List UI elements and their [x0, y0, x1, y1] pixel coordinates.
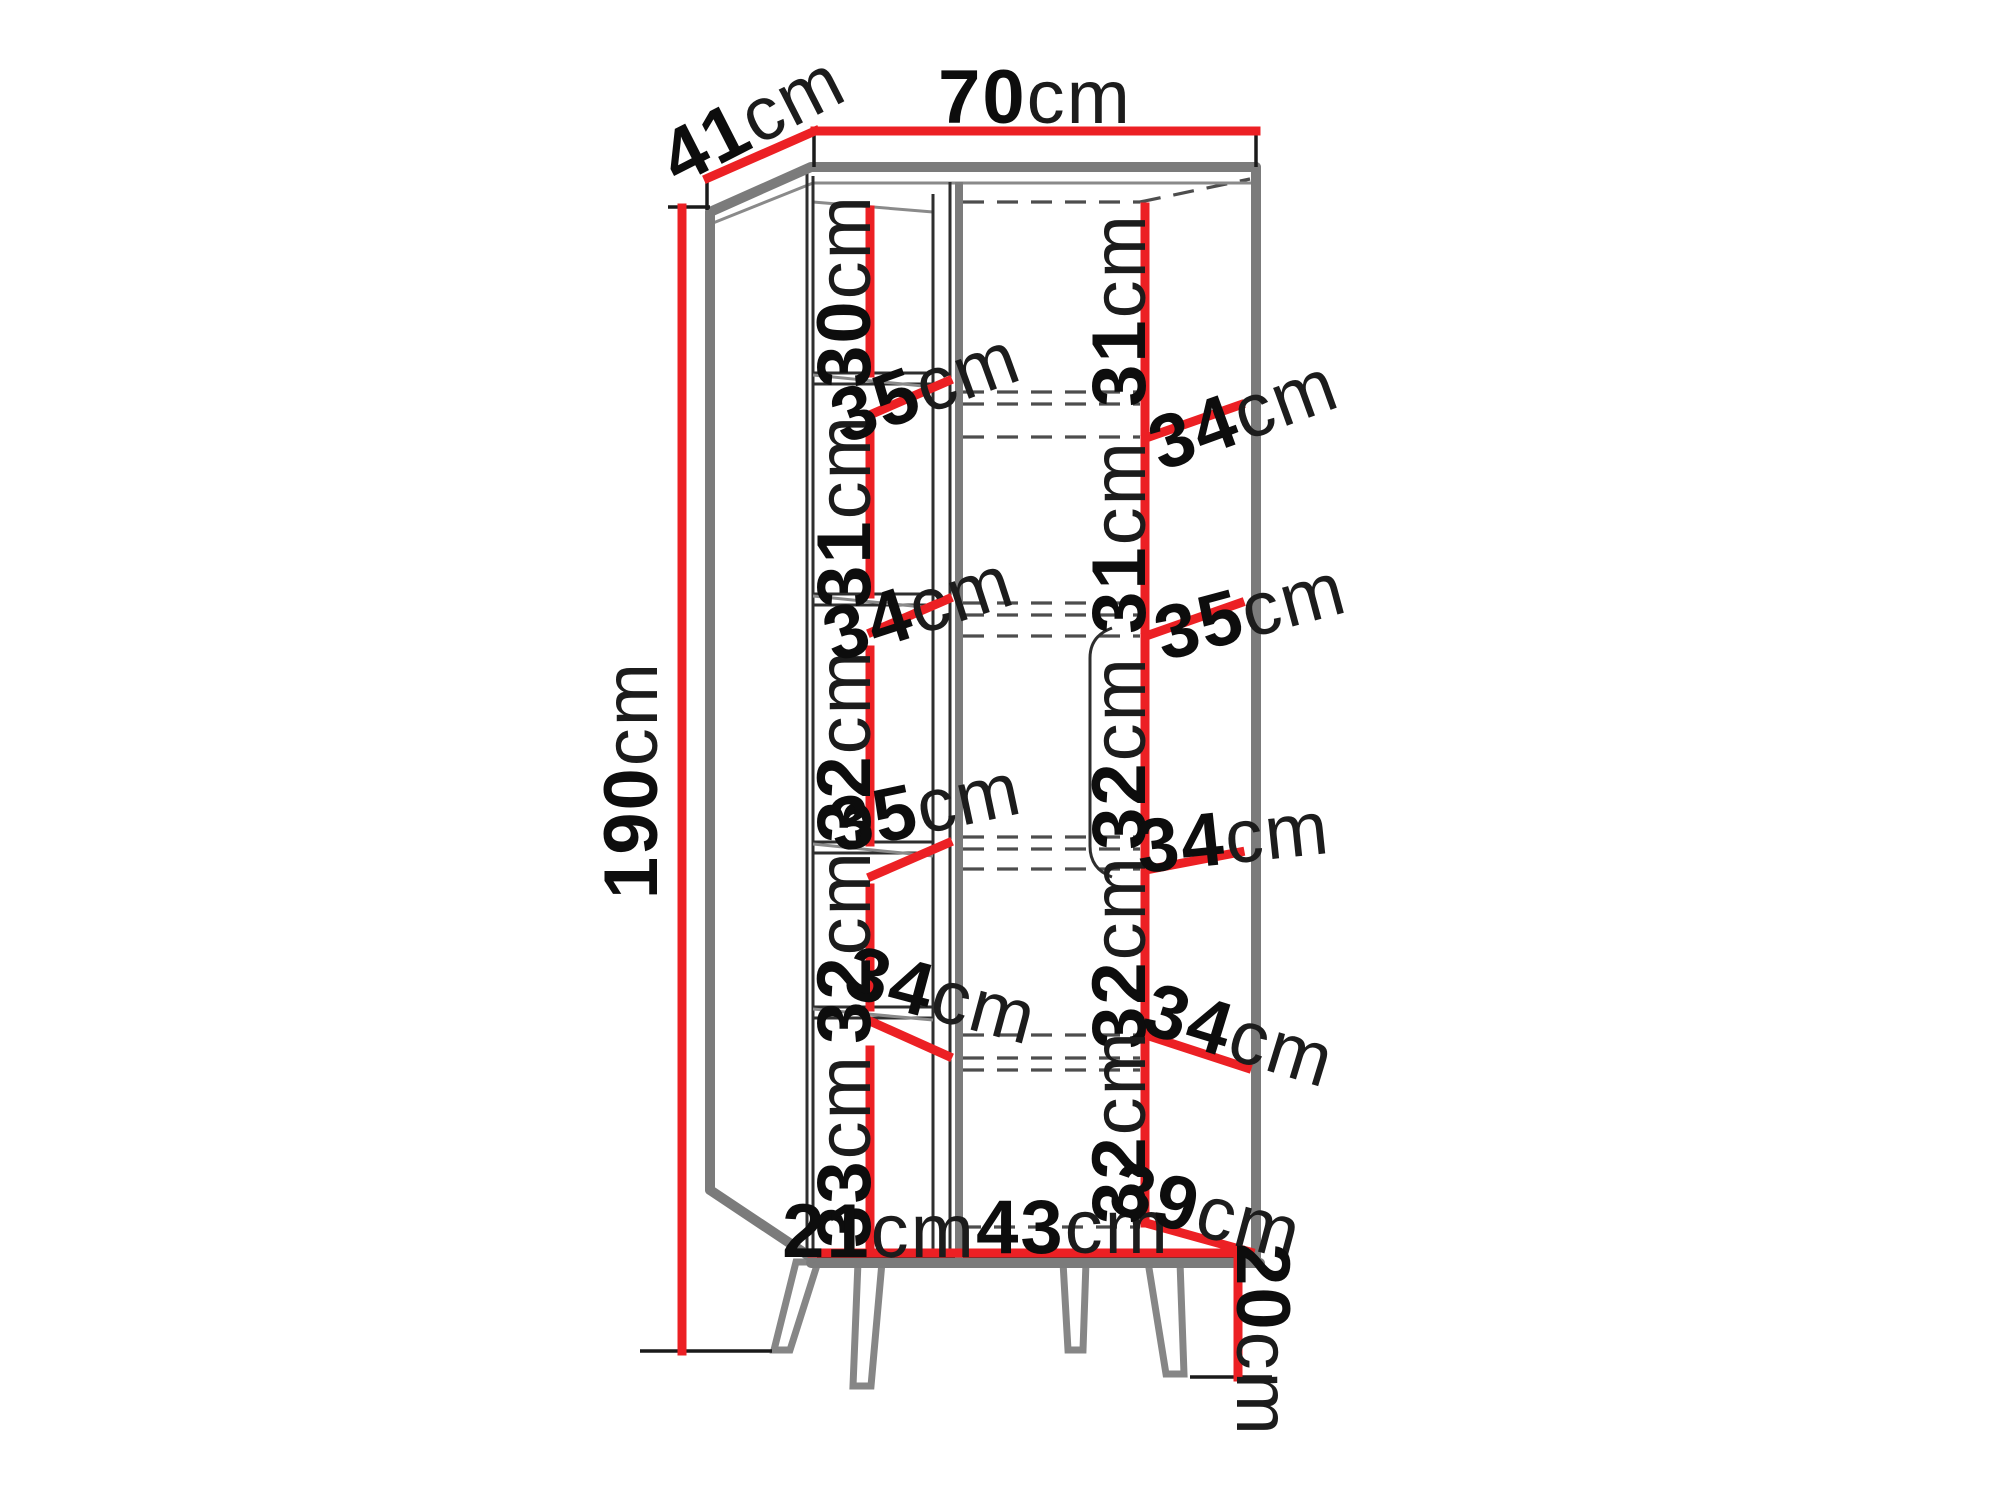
leg-back-left: [774, 1262, 818, 1350]
dim-label-right-shelf-depth-4: 34cm: [1134, 966, 1344, 1104]
dim-label-height: 190cm: [589, 661, 674, 899]
dimension-labels: 41cm 70cm 190cm 30cm 31cm 32cm 32cm 33cm…: [589, 37, 1355, 1436]
furniture-dimension-diagram: 41cm 70cm 190cm 30cm 31cm 32cm 32cm 33cm…: [0, 0, 2000, 1499]
dim-label-left-shelf-height-1: 30cm: [802, 194, 887, 388]
dim-label-top-width: 70cm: [938, 55, 1132, 140]
dim-label-leg-height: 20cm: [1220, 1243, 1305, 1437]
dim-label-right-shelf-depth-3: 34cm: [1132, 785, 1334, 890]
dim-label-bottom-left-width: 21cm: [782, 1189, 976, 1274]
dim-label-right-shelf-depth-2: 35cm: [1146, 545, 1355, 677]
dim-label-top-depth: 41cm: [647, 37, 858, 201]
cabinet-technical-drawing: 41cm 70cm 190cm 30cm 31cm 32cm 32cm 33cm…: [0, 0, 2000, 1499]
leg-back-right: [1063, 1262, 1086, 1350]
legs: [774, 1262, 1184, 1386]
dim-label-right-shelf-depth-1: 34cm: [1138, 341, 1349, 487]
leg-front-right: [1148, 1262, 1184, 1374]
dim-label-right-shelf-height-1: 31cm: [1077, 213, 1162, 407]
leg-front-left: [853, 1262, 882, 1386]
